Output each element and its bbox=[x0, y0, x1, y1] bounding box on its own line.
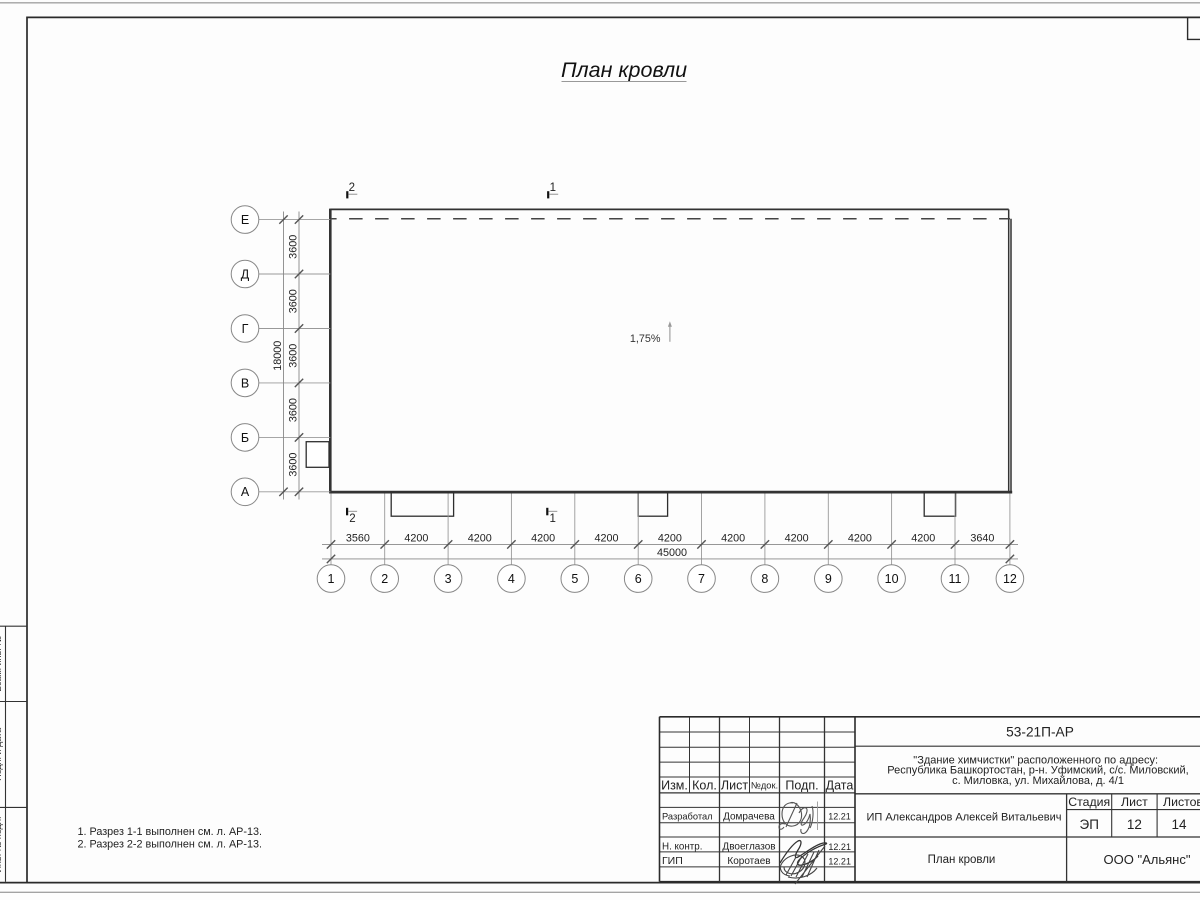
svg-text:Подп. и дата: Подп. и дата bbox=[0, 728, 3, 781]
svg-text:12: 12 bbox=[1003, 572, 1017, 586]
svg-text:12.21: 12.21 bbox=[828, 842, 851, 852]
svg-text:Д: Д bbox=[241, 267, 250, 281]
svg-text:1: 1 bbox=[328, 572, 335, 586]
svg-text:Подп.: Подп. bbox=[785, 778, 818, 792]
svg-text:1,75%: 1,75% bbox=[630, 333, 661, 345]
svg-text:Листов: Листов bbox=[1163, 795, 1200, 809]
svg-text:Г: Г bbox=[242, 322, 249, 336]
svg-text:План кровли: План кровли bbox=[928, 854, 996, 866]
svg-text:12.21: 12.21 bbox=[828, 812, 851, 822]
svg-text:2: 2 bbox=[349, 182, 355, 194]
svg-text:2: 2 bbox=[381, 572, 388, 586]
svg-text:Инв. № подл.: Инв. № подл. bbox=[0, 816, 3, 872]
svg-text:11: 11 bbox=[949, 572, 962, 586]
svg-text:План кровли: План кровли bbox=[561, 58, 687, 82]
svg-text:3600: 3600 bbox=[288, 344, 300, 368]
svg-text:№док.: №док. bbox=[751, 780, 778, 790]
svg-text:с. Миловка, ул. Михайлова, д.: с. Миловка, ул. Михайлова, д. 4/1 bbox=[952, 775, 1124, 787]
svg-text:ГИП: ГИП bbox=[662, 855, 683, 867]
svg-text:3600: 3600 bbox=[288, 398, 300, 422]
svg-text:10: 10 bbox=[885, 572, 899, 586]
svg-text:3600: 3600 bbox=[288, 289, 300, 313]
svg-text:9: 9 bbox=[825, 572, 832, 586]
svg-text:ИП Александров Алексей Виталье: ИП Александров Алексей Витальевич bbox=[866, 811, 1061, 823]
svg-text:3600: 3600 bbox=[288, 453, 300, 477]
svg-text:А: А bbox=[241, 485, 250, 499]
svg-text:6: 6 bbox=[635, 572, 642, 586]
svg-text:12: 12 bbox=[1127, 817, 1142, 832]
svg-text:4200: 4200 bbox=[468, 533, 492, 545]
svg-text:14: 14 bbox=[1171, 817, 1187, 832]
svg-text:3640: 3640 bbox=[970, 533, 994, 545]
svg-text:Лист: Лист bbox=[721, 778, 748, 792]
svg-text:Домрачева: Домрачева bbox=[723, 812, 775, 823]
svg-text:5: 5 bbox=[571, 572, 578, 586]
svg-text:Кол.: Кол. bbox=[692, 778, 717, 792]
svg-text:Н. контр.: Н. контр. bbox=[662, 841, 702, 852]
svg-text:18000: 18000 bbox=[272, 341, 284, 371]
svg-text:Е: Е bbox=[241, 213, 249, 227]
svg-text:ЭП: ЭП bbox=[1079, 817, 1098, 832]
svg-text:3560: 3560 bbox=[346, 533, 370, 545]
svg-text:8: 8 bbox=[761, 572, 768, 586]
svg-text:4200: 4200 bbox=[848, 533, 872, 545]
svg-text:7: 7 bbox=[698, 572, 705, 586]
svg-text:Двоеглазов: Двоеглазов bbox=[722, 842, 775, 853]
svg-text:1: 1 bbox=[549, 513, 555, 525]
svg-text:2: 2 bbox=[349, 513, 355, 525]
svg-text:Дата: Дата bbox=[826, 778, 854, 792]
svg-text:4200: 4200 bbox=[531, 533, 555, 545]
svg-text:2. Разрез 2-2 выполнен см. л.: 2. Разрез 2-2 выполнен см. л. АР-13. bbox=[78, 838, 262, 850]
svg-text:45000: 45000 bbox=[657, 547, 687, 559]
svg-text:3: 3 bbox=[445, 572, 452, 586]
svg-text:4: 4 bbox=[508, 572, 515, 586]
svg-text:4200: 4200 bbox=[658, 533, 682, 545]
svg-text:Лист: Лист bbox=[1121, 795, 1148, 809]
svg-text:Коротаев: Коротаев bbox=[727, 856, 770, 867]
svg-text:4200: 4200 bbox=[404, 533, 428, 545]
svg-text:Стадия: Стадия bbox=[1068, 795, 1110, 809]
svg-text:Взам. инв. №: Взам. инв. № bbox=[0, 636, 3, 692]
svg-text:4200: 4200 bbox=[785, 533, 809, 545]
svg-text:1: 1 bbox=[550, 182, 556, 194]
svg-text:4200: 4200 bbox=[594, 533, 618, 545]
svg-text:3600: 3600 bbox=[288, 235, 300, 259]
svg-text:4200: 4200 bbox=[721, 533, 745, 545]
svg-text:53-21П-АР: 53-21П-АР bbox=[1006, 725, 1074, 740]
svg-text:ООО "Альянс": ООО "Альянс" bbox=[1104, 852, 1191, 867]
svg-text:1. Разрез 1-1 выполнен см. л.: 1. Разрез 1-1 выполнен см. л. АР-13. bbox=[78, 826, 262, 838]
svg-text:Разработал: Разработал bbox=[662, 811, 713, 821]
svg-text:Изм.: Изм. bbox=[661, 778, 688, 792]
svg-text:12.21: 12.21 bbox=[828, 856, 851, 866]
svg-text:В: В bbox=[241, 376, 249, 390]
svg-text:4200: 4200 bbox=[911, 533, 935, 545]
svg-text:Б: Б bbox=[241, 431, 249, 445]
